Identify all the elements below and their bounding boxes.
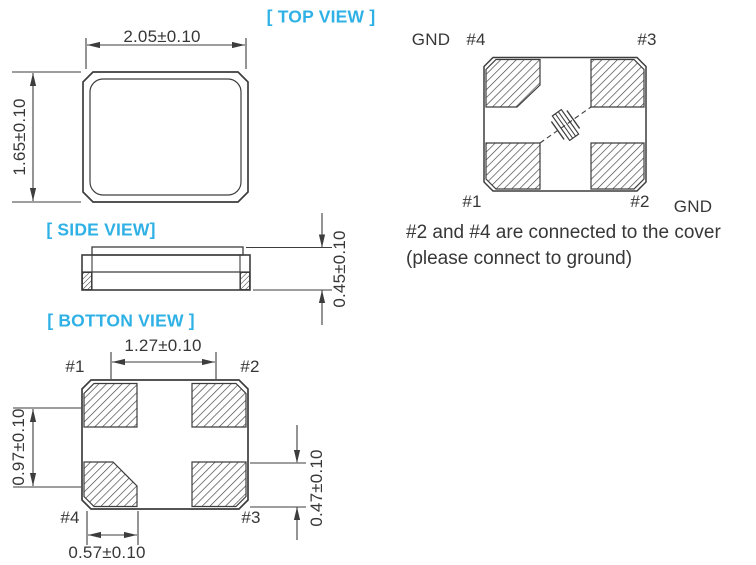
side-view-dimension-arrows [319,235,325,304]
bottom-pad-3 [192,462,246,507]
bottom-pin-label-1: #1 [65,357,84,377]
gnd-label-bottom: GND [674,197,712,217]
bottom-pin-label-3: #3 [241,508,260,528]
pc-pad-2 [591,143,644,189]
top-view-dimension-lines [12,38,246,202]
top-width-dim: 2.05±0.10 [123,27,200,47]
bottom-pad-2 [192,384,246,428]
bottom-view-pads [84,384,246,507]
drawing-linework [0,0,756,565]
bottom-pitch-x-dim: 1.27±0.10 [124,336,201,356]
pad-connection-pads [486,60,644,190]
top-view-dimension-arrows [30,42,245,201]
grounding-note-line-2: (please connect to ground) [406,246,721,272]
pc-pin-label-1: #1 [462,192,481,212]
pc-diagonal-dashed-line [540,107,591,143]
grounding-note: #2 and #4 are connected to the cover (pl… [406,220,721,272]
pc-pin-label-3: #3 [637,30,656,50]
bottom-pad-height-dim: 0.47±0.10 [307,449,327,526]
grounding-note-line-1: #2 and #4 are connected to the cover [406,220,721,246]
bottom-view-dimension-lines [13,352,306,545]
bottom-pin-label-2: #2 [240,357,259,377]
side-view-label: [ SIDE VIEW] [46,220,155,241]
pc-pad-1 [486,143,540,189]
pc-pin-label-2: #2 [630,192,649,212]
bottom-pitch-y-dim: 0.97±0.10 [9,408,29,485]
bottom-pad-4 [84,462,137,507]
pc-pin-label-4: #4 [466,30,485,50]
pc-pad-4 [486,60,540,108]
bottom-pad-1 [84,384,137,428]
side-view-dimension-lines [246,213,332,325]
top-height-dim: 1.65±0.10 [10,98,30,175]
bottom-pin-label-4: #4 [60,508,79,528]
side-thickness-dim: 0.45±0.10 [330,230,350,307]
package-drawing-page: [ TOP VIEW ] 2.05±0.10 1.65±0.10 [ SIDE … [0,0,756,565]
side-view-outline [82,247,250,290]
top-view-label: [ TOP VIEW ] [267,7,376,28]
pc-pad-3 [591,60,644,108]
top-view-outline [83,72,248,202]
crystal-symbol [549,107,582,142]
bottom-pad-width-dim: 0.57±0.10 [68,543,145,563]
bottom-view-label: [ BOTTON VIEW ] [47,311,195,332]
gnd-label-top: GND [412,30,450,50]
